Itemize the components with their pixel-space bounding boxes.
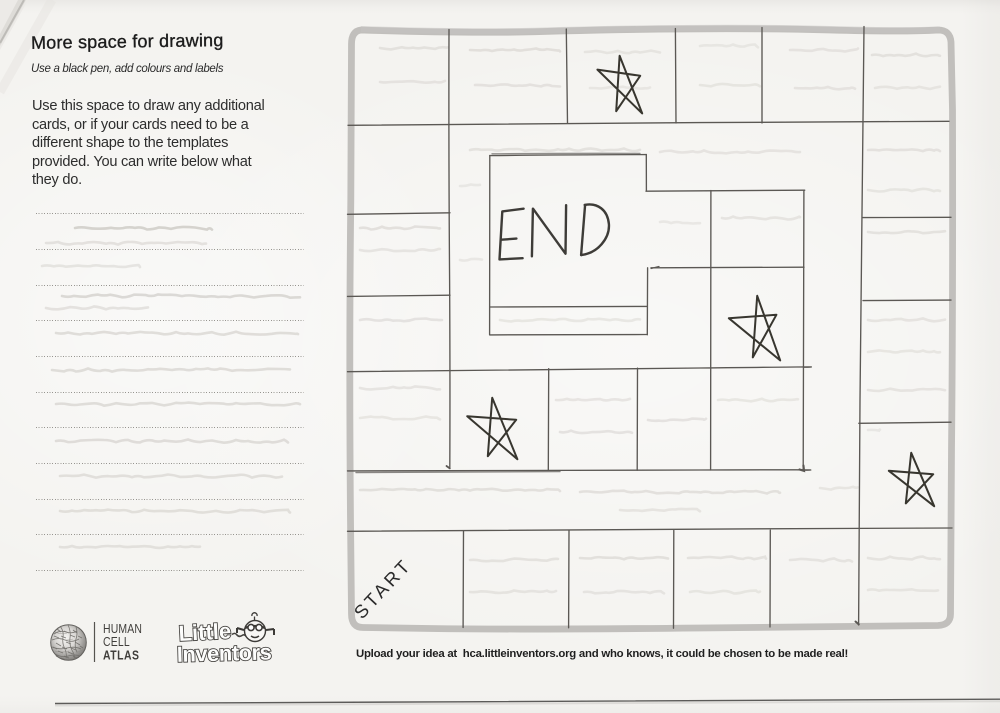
svg-text:START: START — [350, 554, 416, 623]
